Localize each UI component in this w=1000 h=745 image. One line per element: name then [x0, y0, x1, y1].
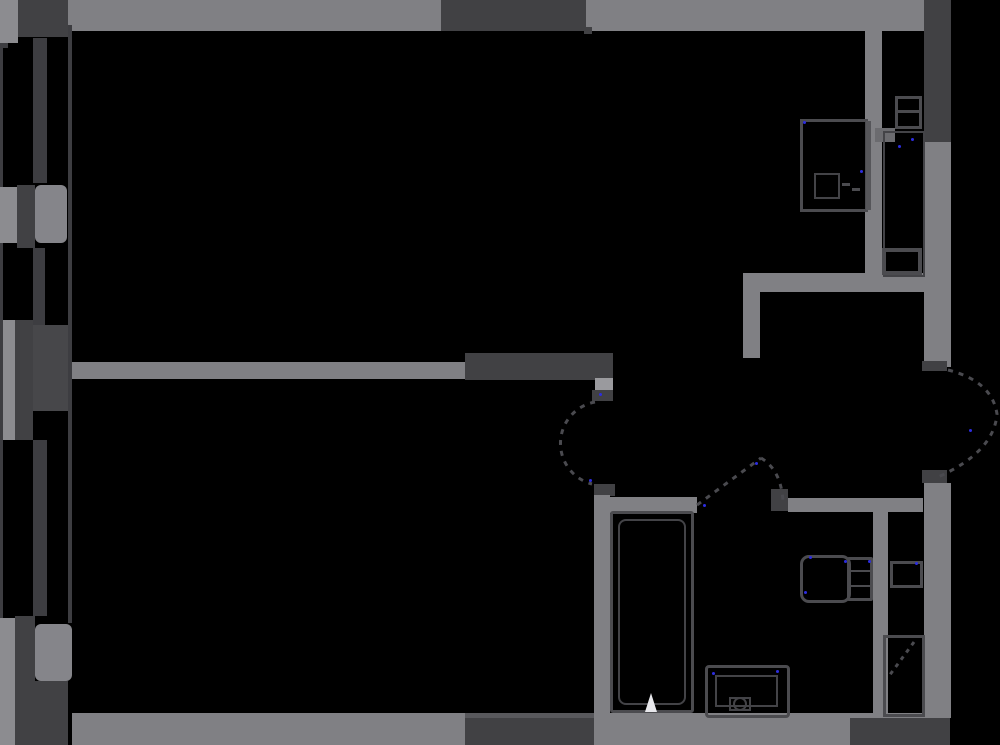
hinge-dot-1: [860, 170, 863, 173]
sink-drain-box: [729, 697, 751, 711]
hinge-dot-12: [703, 504, 706, 507]
balcony-mullion-bottom: [33, 440, 47, 616]
hinge-dot-9: [776, 670, 779, 673]
bath-door-post: [771, 489, 788, 511]
shaft-box: [890, 561, 923, 588]
entry-door-arc: [938, 370, 997, 477]
hinge-dot-10: [915, 562, 918, 565]
kitchen-unit-side: [866, 121, 871, 210]
bathtub-inner: [618, 519, 686, 705]
bottom-window: [465, 718, 605, 745]
hall-bottom-wall-right: [788, 498, 923, 512]
kitchen-unit-dash-a: [842, 183, 850, 186]
balcony-mullion-top: [33, 38, 47, 183]
hinge-dot-11: [589, 479, 592, 482]
balcony-mullion-mid: [33, 248, 45, 325]
balcony-outer-notch: [0, 43, 8, 48]
hinge-dot-14: [755, 462, 758, 465]
balcony-panel1-light: [0, 187, 17, 243]
shower-bottom-box: [882, 248, 922, 275]
right-wall-upper: [924, 142, 951, 367]
bedroom-door-jamb-dark: [592, 390, 613, 401]
right-window: [924, 0, 951, 142]
hinge-dot-15: [599, 393, 602, 396]
hinge-dot-0: [803, 121, 806, 124]
living-left-wall-line: [68, 25, 72, 623]
kitchen-window: [441, 0, 586, 31]
entry-door-block-bottom: [922, 470, 947, 483]
balcony-bottom-light: [0, 618, 15, 745]
balcony-corner-light: [0, 0, 18, 43]
balcony-bottom-rounded: [35, 624, 72, 681]
balcony-bottom-dark2: [35, 681, 68, 745]
balcony-door-dark: [15, 320, 33, 440]
bedroom-door-arc: [560, 402, 595, 484]
toilet-tank-line-a: [850, 570, 870, 572]
balcony-corner-dark: [18, 0, 68, 37]
hinge-dot-3: [898, 145, 901, 148]
middle-wall: [68, 362, 465, 379]
washbasin-top-line: [896, 110, 921, 113]
bedroom-right-wall: [594, 495, 610, 745]
balcony-door-panel: [33, 325, 68, 411]
kitchen-window-latch: [584, 27, 592, 34]
bottom-right-corner-dark: [850, 718, 950, 745]
toilet-tank-line-b: [850, 585, 870, 587]
hinge-dot-5: [844, 560, 847, 563]
kitchen-unit-inner: [814, 173, 840, 199]
entry-door-block-top: [922, 361, 947, 371]
middle-wall-dark-section: [465, 353, 613, 380]
balcony-bottom-dark: [15, 616, 35, 745]
floor-plan-canvas: [0, 0, 1000, 745]
hinge-dot-4: [809, 556, 812, 559]
hinge-dot-13: [969, 429, 972, 432]
balcony-panel1-rounded: [35, 185, 67, 243]
hinge-dot-7: [804, 591, 807, 594]
bath-door-leaf: [697, 458, 761, 505]
shaft-door-outline: [883, 635, 925, 717]
hinge-dot-6: [868, 560, 871, 563]
kitchen-unit-dash-b: [852, 188, 860, 191]
balcony-door-light: [3, 320, 15, 440]
hall-wall-stub: [743, 292, 760, 358]
balcony-panel1-dark: [17, 185, 35, 248]
right-wall-lower: [924, 483, 951, 718]
hinge-dot-2: [911, 138, 914, 141]
hinge-dot-8: [712, 672, 715, 675]
toilet-tank: [847, 557, 873, 601]
